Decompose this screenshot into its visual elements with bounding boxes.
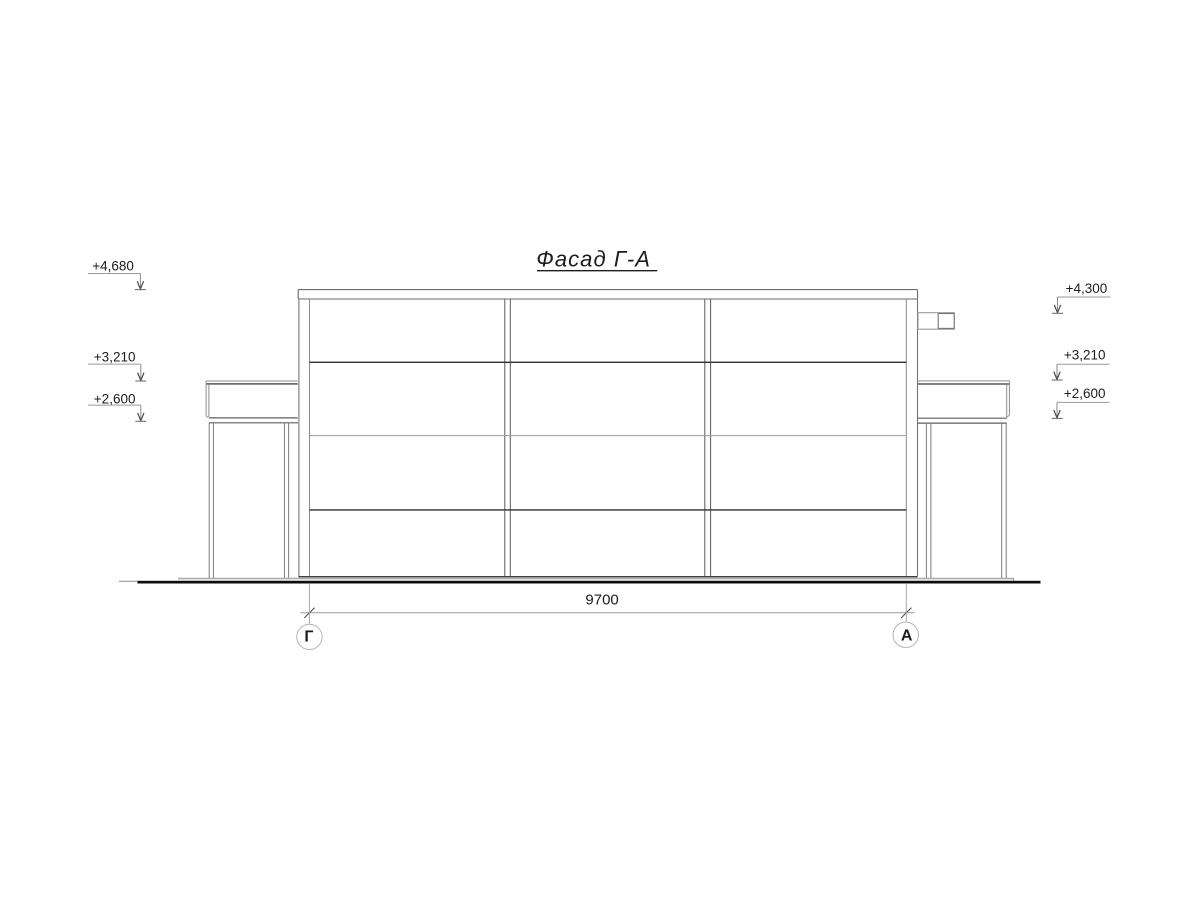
svg-text:+3,210: +3,210	[1064, 347, 1106, 362]
svg-text:Фасад Г-А: Фасад Г-А	[536, 247, 651, 272]
svg-text:+4,300: +4,300	[1066, 281, 1108, 296]
svg-text:+4,680: +4,680	[92, 258, 134, 273]
svg-text:+3,210: +3,210	[94, 349, 136, 364]
svg-text:+2,600: +2,600	[1064, 386, 1106, 401]
svg-text:А: А	[901, 627, 913, 644]
svg-text:Г: Г	[304, 628, 313, 645]
svg-text:+2,600: +2,600	[94, 392, 136, 407]
svg-text:9700: 9700	[585, 592, 618, 609]
